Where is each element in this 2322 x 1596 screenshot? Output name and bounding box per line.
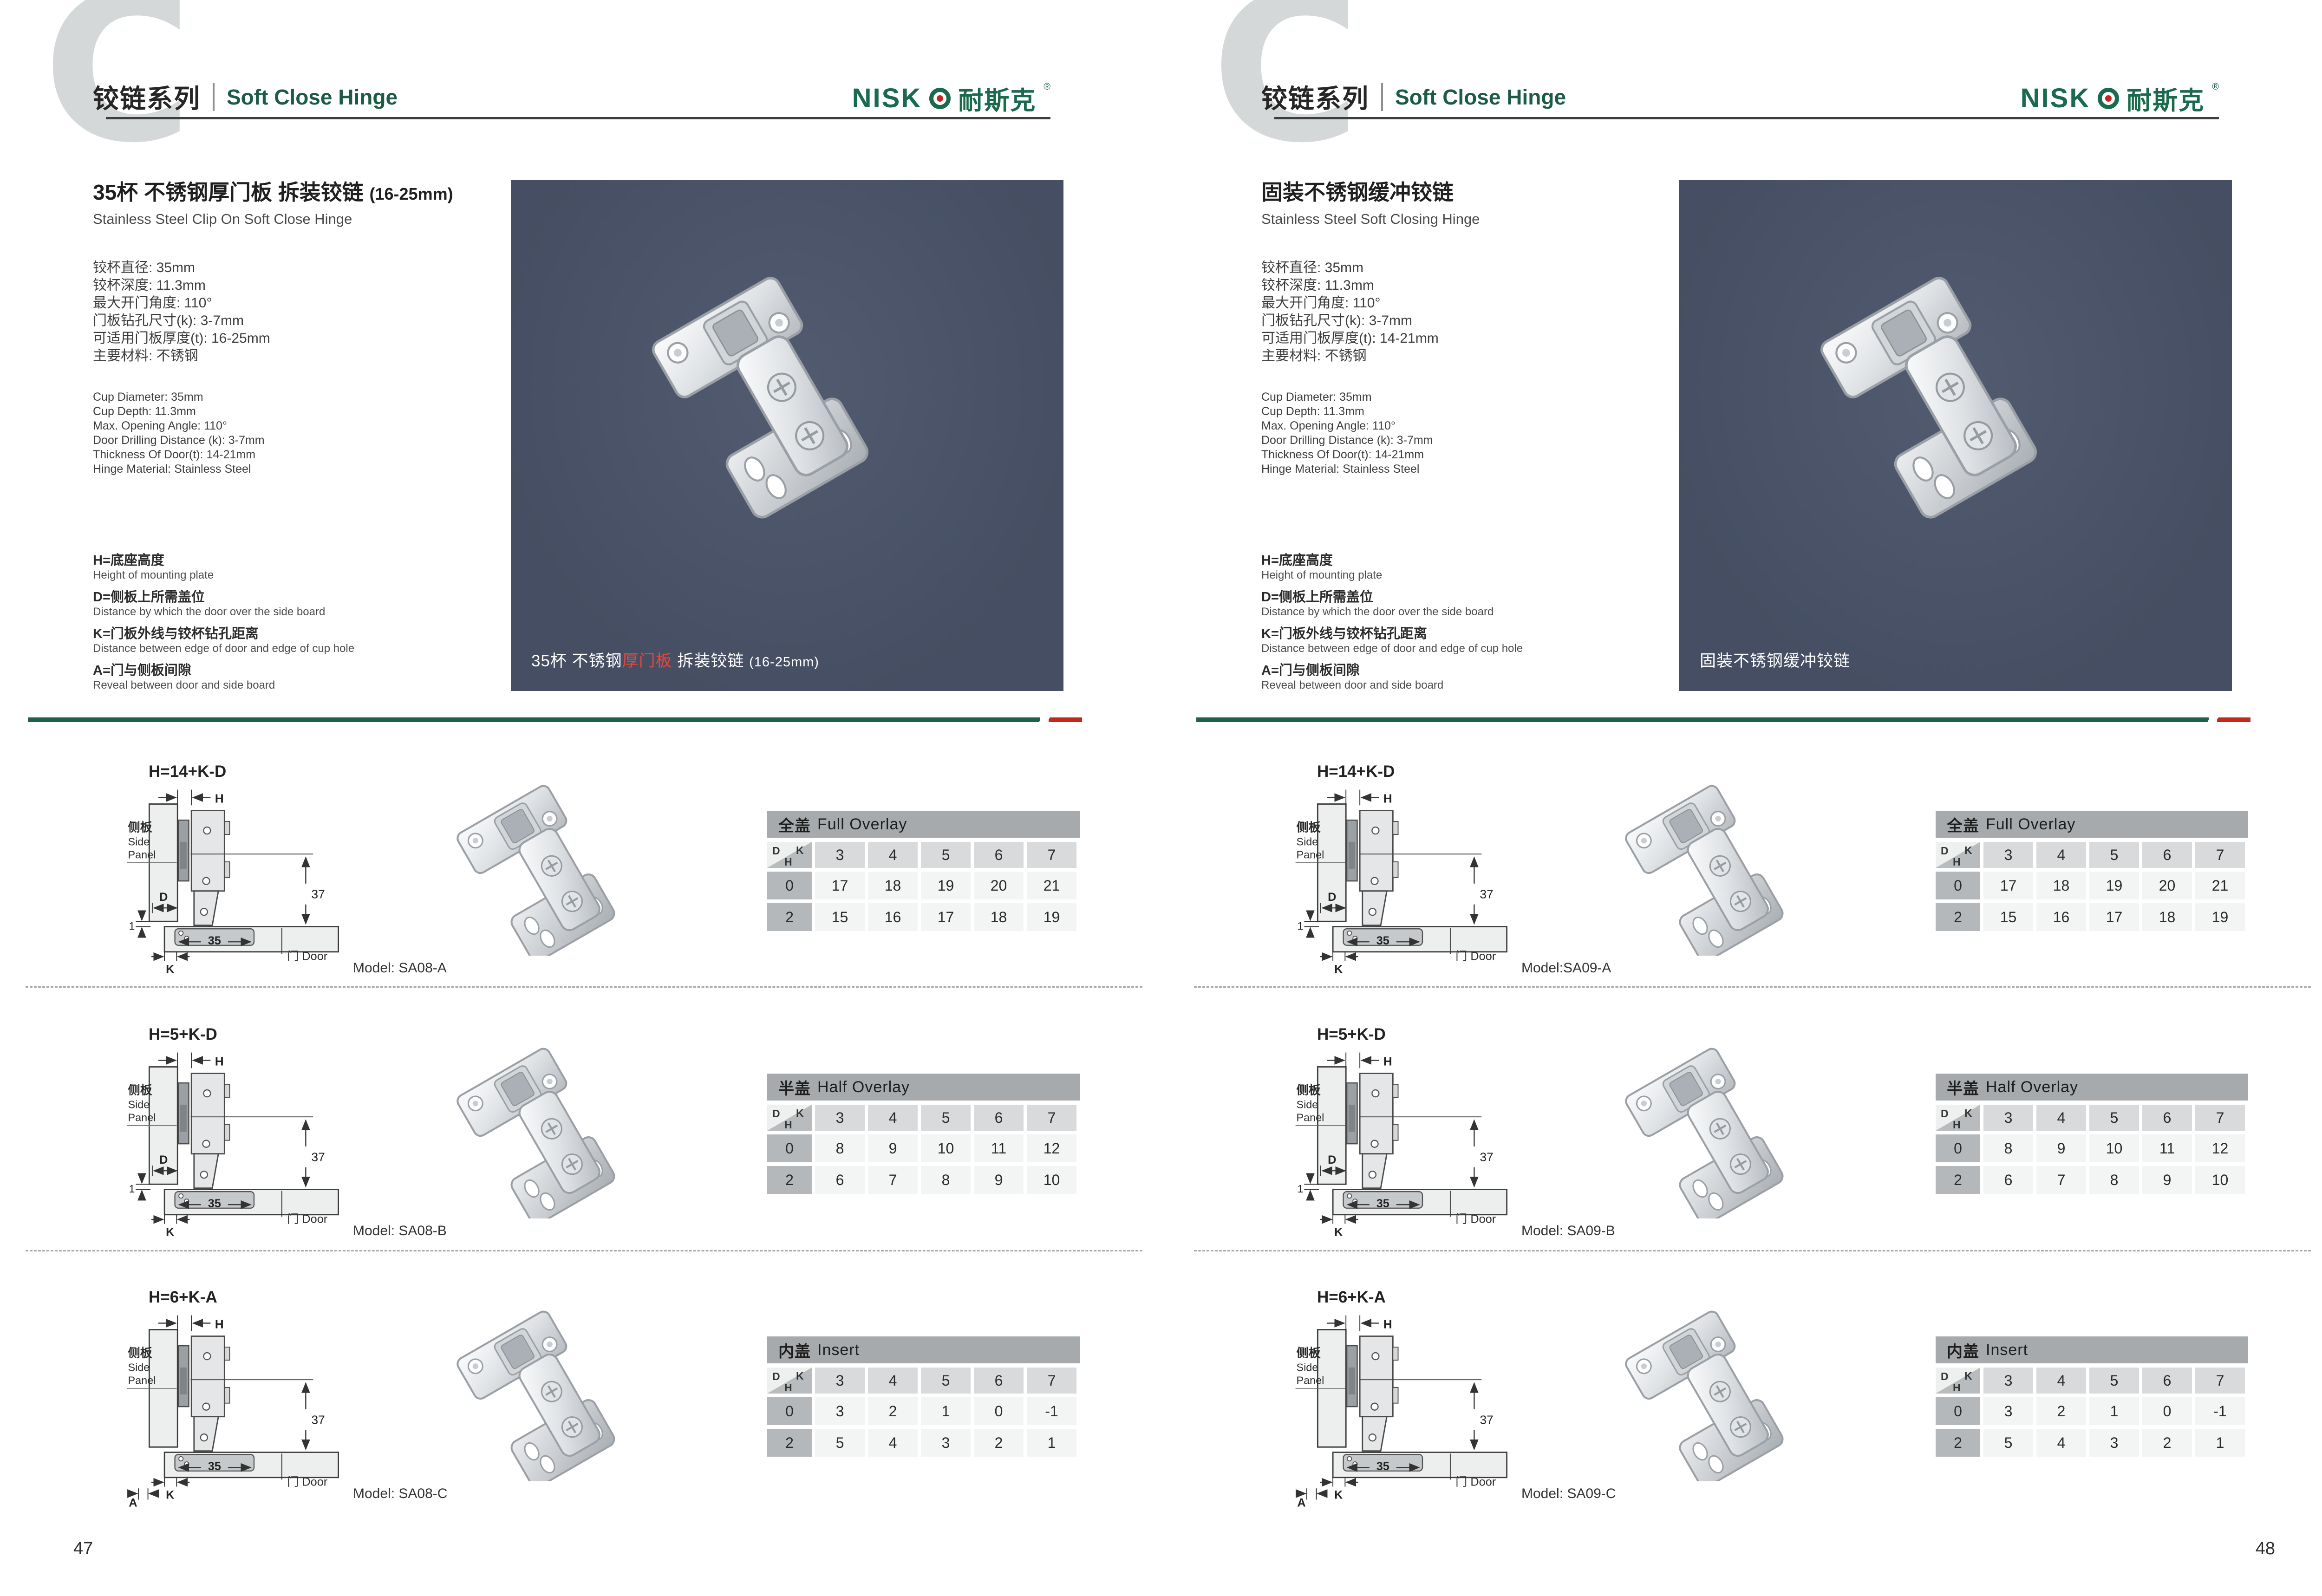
svg-text:1: 1 — [1297, 1183, 1303, 1195]
dimension-37: 37 — [1474, 1120, 1493, 1186]
svg-text:1: 1 — [129, 920, 135, 932]
svg-text:H: H — [784, 1381, 792, 1394]
spec-line: 主要材料: 不锈钢 — [1261, 347, 1439, 365]
dimension-legend: H=底座高度 Height of mounting plate D=侧板上所需盖… — [93, 553, 354, 699]
svg-text:1: 1 — [129, 1183, 135, 1195]
svg-text:侧板: 侧板 — [1296, 1083, 1321, 1097]
table-grid: DKH345670891011122678910 — [1936, 1105, 2248, 1194]
installation-diagram-svg: H 37 35 D 1 K A — [117, 1043, 377, 1247]
table-value-cell: 8 — [921, 1166, 971, 1194]
hinge-photo-svg — [1763, 236, 2153, 524]
legend-en: Height of mounting plate — [93, 568, 354, 582]
series-divider — [213, 83, 215, 111]
diagram-formula: H=6+K-A — [149, 1288, 217, 1307]
hinge-photo — [413, 765, 701, 956]
table-col-header: 7 — [2195, 1368, 2245, 1394]
svg-text:Side: Side — [1296, 1098, 1318, 1110]
dimension-k: K — [151, 1215, 189, 1239]
installation-diagram-svg: H 37 35 D 1 K A — [1285, 1306, 1546, 1510]
table-value-cell: 21 — [2195, 872, 2245, 899]
table-col-header: 5 — [921, 842, 971, 868]
table-value-cell: 17 — [815, 872, 865, 899]
svg-text:K: K — [796, 1370, 804, 1382]
legend-item: H=底座高度 Height of mounting plate — [1261, 553, 1523, 582]
table-corner-cell: DKH — [1936, 1105, 1980, 1131]
table-col-header: 7 — [1027, 842, 1076, 868]
model-label: Model: SA09-C — [1521, 1486, 1616, 1502]
spec-line: Hinge Material: Stainless Steel — [93, 462, 265, 476]
spec-line: 门板钻孔尺寸(k): 3-7mm — [1261, 312, 1439, 330]
table-value-cell: 2 — [868, 1397, 918, 1425]
svg-text:Side: Side — [128, 835, 150, 847]
svg-text:D: D — [772, 1107, 780, 1120]
brand-logo-cn: 耐斯克 — [958, 80, 1036, 117]
svg-text:D: D — [159, 891, 168, 904]
table-value-cell: 1 — [2195, 1429, 2245, 1457]
svg-text:H: H — [1953, 856, 1961, 868]
row-separator — [1194, 986, 2311, 988]
table-value-cell: 18 — [2142, 903, 2192, 931]
spec-line: 铰杯直径: 35mm — [93, 259, 270, 277]
dimension-h: H — [1327, 790, 1392, 806]
installation-diagram: H 37 35 D 1 K A — [1285, 780, 1546, 984]
table-title-en: Half Overlay — [817, 1078, 910, 1096]
svg-text:K: K — [166, 1489, 175, 1502]
table-value-cell: 1 — [2089, 1397, 2139, 1425]
product-row: H=6+K-A H 37 35 — [0, 1282, 1168, 1516]
brand-logo-text: NISK — [852, 83, 922, 114]
table-value-cell: 17 — [921, 903, 971, 931]
table-corner-cell: DKH — [767, 1368, 812, 1394]
svg-text:H: H — [215, 1055, 224, 1068]
svg-text:门 Door: 门 Door — [287, 1476, 327, 1489]
product-row: H=5+K-D H 37 35 — [1168, 1019, 2322, 1253]
dimension-1: 1 — [1297, 912, 1319, 936]
table-col-header: 7 — [1027, 1368, 1076, 1394]
divider-red-bar — [1049, 717, 1082, 722]
overlay-table: 全盖 Full Overlay DKH345670171819202121516… — [1936, 811, 2251, 931]
spec-line: Cup Diameter: 35mm — [93, 390, 265, 404]
svg-text:K: K — [796, 844, 804, 856]
table-value-cell: 9 — [2036, 1134, 2086, 1162]
table-value-cell: 6 — [815, 1166, 865, 1194]
legend-cn: D=侧板上所需盖位 — [93, 589, 354, 605]
svg-text:Panel: Panel — [1296, 1375, 1324, 1387]
table-value-cell: 3 — [1983, 1397, 2033, 1425]
divider-green-bar — [1196, 717, 2209, 722]
table-row-header: 2 — [1936, 903, 1980, 931]
spec-line: Door Drilling Distance (k): 3-7mm — [93, 433, 265, 448]
spec-line: 最大开门角度: 110° — [93, 294, 270, 312]
table-value-cell: 10 — [2195, 1166, 2245, 1194]
svg-text:K: K — [166, 963, 175, 976]
table-value-cell: 2 — [974, 1429, 1024, 1457]
table-value-cell: 3 — [815, 1397, 865, 1425]
svg-text:门 Door: 门 Door — [1455, 1476, 1496, 1489]
svg-text:Side: Side — [1296, 1361, 1318, 1373]
table-value-cell: 19 — [1027, 903, 1076, 931]
row-separator — [1194, 1250, 2311, 1251]
model-label: Model: SA09-B — [1521, 1223, 1615, 1239]
installation-diagram: H 37 35 D 1 K A — [1285, 1043, 1546, 1247]
svg-text:H: H — [784, 856, 792, 868]
table-value-cell: 19 — [2089, 872, 2139, 899]
product-row: H=5+K-D H 37 35 — [0, 1019, 1168, 1253]
svg-text:H: H — [784, 1119, 792, 1131]
logo-o-icon — [929, 88, 951, 109]
dimension-37: 37 — [1474, 1383, 1493, 1449]
svg-text:37: 37 — [1480, 1413, 1494, 1427]
legend-item: H=底座高度 Height of mounting plate — [93, 553, 354, 582]
table-col-header: 5 — [2089, 1368, 2139, 1394]
table-row-header: 2 — [767, 903, 812, 931]
table-col-header: 4 — [2036, 1368, 2086, 1394]
svg-text:H: H — [1383, 792, 1392, 806]
table-value-cell: 8 — [815, 1134, 865, 1162]
svg-text:A: A — [129, 1497, 137, 1510]
hero-caption-text: 拆装铰链 — [672, 652, 749, 670]
dimension-k: K — [1320, 1478, 1358, 1502]
table-col-header: 6 — [974, 1105, 1024, 1131]
svg-text:35: 35 — [1376, 1197, 1389, 1210]
spec-line: 可适用门板厚度(t): 14-21mm — [1261, 330, 1439, 347]
product-title-en: Stainless Steel Soft Closing Hinge — [1261, 211, 1480, 228]
registered-mark: ® — [1044, 82, 1050, 92]
spec-line: Cup Depth: 11.3mm — [1261, 404, 1433, 419]
section-divider — [28, 717, 1082, 722]
table-col-header: 5 — [2089, 1105, 2139, 1131]
catalog-page-47: C 铰链系列 Soft Close Hinge NISK 耐斯克 ® 35杯 不… — [0, 0, 1168, 1596]
hero-caption-red: 厚门板 — [622, 652, 672, 670]
series-title-cn: 铰链系列 — [93, 78, 201, 116]
series-header: 铰链系列 Soft Close Hinge — [93, 78, 398, 116]
table-value-cell: 20 — [974, 872, 1024, 899]
table-title-cn: 全盖 — [1947, 813, 1979, 836]
spec-line: 门板钻孔尺寸(k): 3-7mm — [93, 312, 270, 330]
table-grid: DKH345670171819202121516171819 — [767, 842, 1080, 931]
table-value-cell: 15 — [1983, 903, 2033, 931]
table-col-header: 6 — [974, 842, 1024, 868]
table-row-header: 2 — [767, 1429, 812, 1457]
svg-text:侧板: 侧板 — [1296, 820, 1321, 834]
svg-text:侧板: 侧板 — [1296, 1346, 1321, 1360]
model-label: Model: SA08-C — [353, 1486, 447, 1502]
dimension-h: H — [1327, 1053, 1392, 1068]
row-separator — [26, 1250, 1142, 1251]
legend-item: D=侧板上所需盖位 Distance by which the door ove… — [1261, 589, 1523, 619]
table-title-bar: 内盖 Insert — [767, 1336, 1080, 1363]
dimension-k: K — [151, 1478, 189, 1502]
table-value-cell: 3 — [2089, 1429, 2139, 1457]
dimension-37: 37 — [306, 858, 325, 924]
table-value-cell: 5 — [1983, 1429, 2033, 1457]
table-value-cell: 3 — [921, 1429, 971, 1457]
hinge-photo — [1582, 1291, 1870, 1481]
table-col-header: 3 — [1983, 1368, 2033, 1394]
brand-logo: NISK 耐斯克 ® — [852, 80, 1050, 117]
installation-diagram-svg: H 37 35 D 1 K A — [1285, 780, 1546, 984]
dimension-h: H — [158, 1053, 224, 1068]
table-row-header: 2 — [767, 1166, 812, 1194]
diagram-formula: H=14+K-D — [149, 762, 226, 781]
legend-en: Distance by which the door over the side… — [93, 605, 354, 619]
hinge-photo — [1582, 1028, 1870, 1218]
svg-text:A: A — [1297, 1497, 1305, 1510]
product-title-cn: 固装不锈钢缓冲铰链 — [1261, 180, 1454, 204]
dimension-37: 37 — [306, 1120, 325, 1186]
hero-caption: 35杯 不锈钢厚门板 拆装铰链 (16-25mm) — [531, 648, 819, 671]
dimension-h: H — [158, 790, 224, 806]
table-col-header: 3 — [1983, 842, 2033, 868]
hero-caption-size: (16-25mm) — [749, 655, 819, 670]
table-value-cell: 11 — [2142, 1134, 2192, 1162]
table-value-cell: 8 — [2089, 1166, 2139, 1194]
table-value-cell: 17 — [1983, 872, 2033, 899]
svg-text:37: 37 — [1480, 887, 1494, 901]
hinge-photo-svg — [594, 236, 985, 524]
installation-diagram-svg: H 37 35 D 1 K A — [117, 780, 377, 984]
svg-text:37: 37 — [312, 1413, 325, 1427]
svg-text:D: D — [1941, 1107, 1949, 1120]
specs-en: Cup Diameter: 35mm Cup Depth: 11.3mm Max… — [93, 390, 265, 476]
table-col-header: 5 — [921, 1368, 971, 1394]
legend-cn: A=门与侧板间隙 — [93, 663, 354, 678]
table-col-header: 3 — [815, 842, 865, 868]
installation-diagram: H 37 35 D 1 K A — [117, 1043, 377, 1247]
spec-line: 可适用门板厚度(t): 16-25mm — [93, 330, 270, 347]
page-number: 48 — [2256, 1539, 2275, 1559]
table-title-en: Full Overlay — [817, 815, 907, 834]
table-value-cell: 17 — [2089, 903, 2139, 931]
table-value-cell: 0 — [2142, 1397, 2192, 1425]
hinge-photo-svg — [1582, 1291, 1870, 1481]
table-col-header: 6 — [974, 1368, 1024, 1394]
table-value-cell: 7 — [2036, 1166, 2086, 1194]
dimension-k: K — [1320, 952, 1358, 976]
table-corner-cell: DKH — [1936, 842, 1980, 868]
table-title-cn: 全盖 — [778, 813, 811, 836]
table-grid: DKH345670891011122678910 — [767, 1105, 1080, 1194]
table-col-header: 3 — [1983, 1105, 2033, 1131]
product-row: H=14+K-D H 37 35 — [1168, 756, 2322, 990]
legend-cn: H=底座高度 — [1261, 553, 1523, 568]
dimension-h: H — [1327, 1316, 1392, 1331]
table-value-cell: 9 — [2142, 1166, 2192, 1194]
svg-text:35: 35 — [208, 1460, 221, 1473]
model-label: Model: SA08-B — [353, 1223, 447, 1239]
overlay-table: 内盖 Insert DKH3456703210-1254321 — [1936, 1336, 2251, 1457]
legend-item: K=门板外线与铰杯钻孔距离 Distance between edge of d… — [93, 626, 354, 655]
svg-text:Side: Side — [1296, 835, 1318, 847]
table-title-bar: 全盖 Full Overlay — [767, 811, 1080, 838]
series-title-en: Soft Close Hinge — [227, 85, 398, 110]
dimension-1: 1 — [129, 1175, 150, 1199]
table-value-cell: 15 — [815, 903, 865, 931]
spec-line: 最大开门角度: 110° — [1261, 294, 1439, 312]
table-title-en: Insert — [817, 1341, 860, 1359]
overlay-table: 全盖 Full Overlay DKH345670171819202121516… — [767, 811, 1083, 931]
svg-text:门 Door: 门 Door — [1455, 950, 1496, 963]
table-grid: DKH3456703210-1254321 — [767, 1368, 1080, 1457]
brand-logo-cn: 耐斯克 — [2126, 80, 2205, 117]
table-col-header: 3 — [815, 1105, 865, 1131]
spec-line: 铰杯深度: 11.3mm — [93, 277, 270, 294]
table-row-header: 2 — [1936, 1166, 1980, 1194]
legend-cn: H=底座高度 — [93, 553, 354, 568]
svg-text:K: K — [1334, 1226, 1343, 1239]
svg-text:K: K — [1334, 963, 1343, 976]
installation-diagram: H 37 35 D 1 K A — [117, 780, 377, 984]
table-corner-cell: DKH — [767, 1105, 812, 1131]
legend-cn: D=侧板上所需盖位 — [1261, 589, 1523, 605]
svg-text:侧板: 侧板 — [128, 1346, 152, 1360]
table-value-cell: 16 — [2036, 903, 2086, 931]
spec-line: 主要材料: 不锈钢 — [93, 347, 270, 365]
table-row-header: 0 — [1936, 1397, 1980, 1425]
dimension-1: 1 — [129, 912, 150, 936]
product-title-block: 35杯 不锈钢厚门板 拆装铰链 (16-25mm) Stainless Stee… — [93, 176, 453, 228]
legend-cn: K=门板外线与铰杯钻孔距离 — [93, 626, 354, 642]
table-value-cell: 6 — [1983, 1166, 2033, 1194]
svg-text:H: H — [215, 792, 224, 806]
table-col-header: 4 — [868, 842, 918, 868]
table-value-cell: 9 — [868, 1134, 918, 1162]
legend-en: Height of mounting plate — [1261, 568, 1523, 582]
table-value-cell: 20 — [2142, 872, 2192, 899]
hinge-photo — [1582, 765, 1870, 956]
table-value-cell: 10 — [1027, 1166, 1076, 1194]
logo-dot-icon — [937, 95, 943, 102]
diagram-formula: H=5+K-D — [1317, 1025, 1386, 1044]
table-col-header: 4 — [868, 1105, 918, 1131]
table-value-cell: 11 — [974, 1134, 1024, 1162]
svg-text:H: H — [215, 1317, 224, 1331]
legend-cn: A=门与侧板间隙 — [1261, 663, 1523, 678]
overlay-table: 内盖 Insert DKH3456703210-1254321 — [767, 1336, 1083, 1457]
diagram-formula: H=5+K-D — [149, 1025, 217, 1044]
table-value-cell: 19 — [2195, 903, 2245, 931]
hero-caption-text: 35杯 不锈钢 — [531, 652, 622, 670]
product-title-size: (16-25mm) — [370, 184, 453, 203]
svg-text:门 Door: 门 Door — [1455, 1213, 1496, 1226]
table-value-cell: -1 — [1027, 1397, 1076, 1425]
table-value-cell: 4 — [868, 1429, 918, 1457]
svg-text:H: H — [1953, 1119, 1961, 1131]
svg-text:K: K — [1964, 1370, 1972, 1382]
table-value-cell: 4 — [2036, 1429, 2086, 1457]
spec-line: Thickness Of Door(t): 14-21mm — [93, 448, 265, 462]
hero-caption: 固装不锈钢缓冲铰链 — [1700, 648, 1850, 671]
model-label: Model: SA08-A — [353, 960, 447, 976]
svg-text:1: 1 — [1297, 920, 1303, 932]
divider-red-bar — [2217, 717, 2250, 722]
svg-text:Panel: Panel — [128, 1112, 156, 1124]
spec-line: Cup Depth: 11.3mm — [93, 404, 265, 419]
svg-text:D: D — [1328, 1153, 1336, 1166]
hinge-photo — [413, 1028, 701, 1218]
table-value-cell: 10 — [2089, 1134, 2139, 1162]
page-number: 47 — [73, 1539, 93, 1559]
svg-text:D: D — [1941, 1370, 1949, 1382]
spec-line: Hinge Material: Stainless Steel — [1261, 462, 1433, 476]
svg-text:35: 35 — [1376, 1460, 1389, 1473]
dimension-37: 37 — [306, 1383, 325, 1449]
svg-text:K: K — [1334, 1489, 1343, 1502]
table-value-cell: 8 — [1983, 1134, 2033, 1162]
legend-item: K=门板外线与铰杯钻孔距离 Distance between edge of d… — [1261, 626, 1523, 655]
table-grid: DKH3456703210-1254321 — [1936, 1368, 2248, 1457]
table-title-cn: 半盖 — [1947, 1076, 1979, 1099]
table-col-header: 4 — [2036, 1105, 2086, 1131]
table-col-header: 6 — [2142, 1368, 2192, 1394]
table-value-cell: 9 — [974, 1166, 1024, 1194]
series-divider — [1381, 83, 1383, 111]
table-col-header: 5 — [2089, 842, 2139, 868]
table-value-cell: 1 — [921, 1397, 971, 1425]
catalog-page-48: C 铰链系列 Soft Close Hinge NISK 耐斯克 ® 固装不锈钢… — [1168, 0, 2322, 1596]
svg-text:37: 37 — [1480, 1150, 1494, 1164]
catalog-spread: C 铰链系列 Soft Close Hinge NISK 耐斯克 ® 35杯 不… — [0, 0, 2322, 1596]
hinge-photo-svg — [413, 765, 701, 956]
svg-text:35: 35 — [1376, 934, 1389, 947]
table-title-bar: 内盖 Insert — [1936, 1336, 2248, 1363]
svg-text:Panel: Panel — [128, 1375, 156, 1387]
table-row-header: 2 — [1936, 1429, 1980, 1457]
dimension-37: 37 — [1474, 858, 1493, 924]
legend-item: D=侧板上所需盖位 Distance by which the door ove… — [93, 589, 354, 619]
table-col-header: 4 — [2036, 842, 2086, 868]
svg-text:K: K — [1964, 1107, 1972, 1119]
table-col-header: 7 — [2195, 1105, 2245, 1131]
product-title-cn: 35杯 不锈钢厚门板 拆装铰链 — [93, 180, 370, 204]
table-row-header: 0 — [1936, 1134, 1980, 1162]
row-separator — [26, 986, 1142, 988]
legend-en: Distance between edge of door and edge o… — [1261, 642, 1523, 655]
svg-text:Panel: Panel — [128, 849, 156, 861]
svg-text:H: H — [1383, 1055, 1392, 1068]
installation-diagram-svg: H 37 35 D 1 K A — [117, 1306, 377, 1510]
table-value-cell: 1 — [1027, 1429, 1076, 1457]
hero-product-image: 35杯 不锈钢厚门板 拆装铰链 (16-25mm) — [511, 180, 1063, 691]
product-title-block: 固装不锈钢缓冲铰链 Stainless Steel Soft Closing H… — [1261, 176, 1480, 228]
table-value-cell: 19 — [921, 872, 971, 899]
hinge-photo-svg — [1582, 1028, 1870, 1218]
legend-item: A=门与侧板间隙 Reveal between door and side bo… — [1261, 663, 1523, 692]
svg-text:H: H — [1383, 1317, 1392, 1331]
legend-item: A=门与侧板间隙 Reveal between door and side bo… — [93, 663, 354, 692]
table-title-bar: 半盖 Half Overlay — [1936, 1074, 2248, 1101]
table-title-cn: 内盖 — [778, 1339, 811, 1361]
spec-line: 铰杯直径: 35mm — [1261, 259, 1439, 277]
table-col-header: 4 — [868, 1368, 918, 1394]
installation-diagram-svg: H 37 35 D 1 K A — [1285, 1043, 1546, 1247]
svg-text:Side: Side — [128, 1098, 150, 1110]
svg-text:D: D — [772, 845, 780, 857]
table-corner-cell: DKH — [1936, 1368, 1980, 1394]
table-value-cell: 12 — [1027, 1134, 1076, 1162]
svg-text:D: D — [159, 1153, 168, 1166]
table-value-cell: -1 — [2195, 1397, 2245, 1425]
table-row-header: 0 — [767, 1397, 812, 1425]
dimension-k: K — [1320, 1215, 1358, 1239]
hero-hinge-photo — [1763, 236, 2153, 524]
product-title-en: Stainless Steel Clip On Soft Close Hinge — [93, 211, 453, 228]
section-divider — [1196, 717, 2250, 722]
hero-caption-text: 固装不锈钢缓冲铰链 — [1700, 652, 1850, 670]
brand-logo: NISK 耐斯克 ® — [2021, 80, 2219, 117]
svg-text:Panel: Panel — [1296, 849, 1324, 861]
dimension-a: A — [128, 1488, 158, 1509]
